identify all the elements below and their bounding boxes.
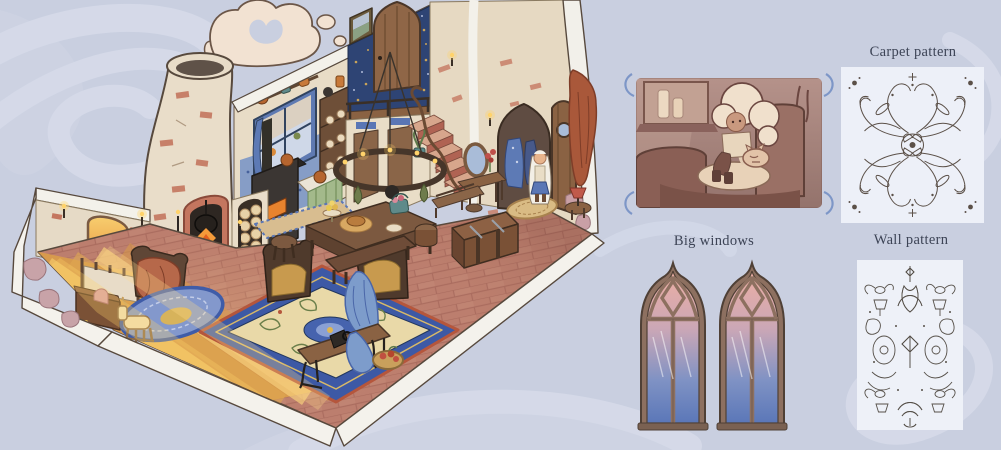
landing-door	[374, 2, 420, 92]
hanging-coat	[505, 138, 523, 188]
wall-pattern-label: Wall pattern	[821, 232, 1001, 249]
hanging-pot	[385, 185, 399, 199]
vanity-stool	[466, 204, 482, 212]
wall-pattern-panel	[857, 260, 963, 430]
big-windows-pair	[638, 263, 787, 430]
boot	[535, 194, 539, 202]
carpet-pattern-panel	[841, 67, 984, 223]
seat-cushion	[272, 264, 306, 296]
big-windows-label: Big windows	[624, 233, 804, 250]
candle	[673, 98, 683, 118]
candle	[658, 90, 669, 118]
vanity-mirror	[463, 143, 488, 177]
concept-art-scene	[0, 0, 1001, 450]
gothic-window	[638, 263, 708, 430]
sweater	[535, 166, 545, 182]
face	[727, 113, 746, 132]
boot	[542, 194, 546, 202]
kettle	[323, 87, 333, 97]
wingback-chair-left	[263, 240, 313, 302]
boot	[712, 170, 721, 182]
artwork-canvas: Carpet pattern Big windows Wall pattern	[0, 0, 1001, 450]
cabinet-door	[388, 126, 412, 194]
cabinet-label	[390, 118, 410, 125]
window-sill	[638, 423, 708, 430]
plate	[386, 224, 402, 232]
girl-character	[529, 150, 551, 204]
blue-skirt	[531, 182, 549, 194]
bread-loaf	[347, 216, 365, 226]
crock	[336, 76, 344, 87]
carpet-pattern-label: Carpet pattern	[823, 44, 1001, 61]
stove-kettle	[281, 154, 293, 166]
sepia-window	[636, 82, 718, 132]
window-plant	[294, 133, 301, 140]
door-handle	[378, 56, 382, 60]
torch-flame	[488, 113, 492, 117]
sepia-vignette-panel	[625, 74, 832, 214]
boot	[724, 172, 733, 184]
